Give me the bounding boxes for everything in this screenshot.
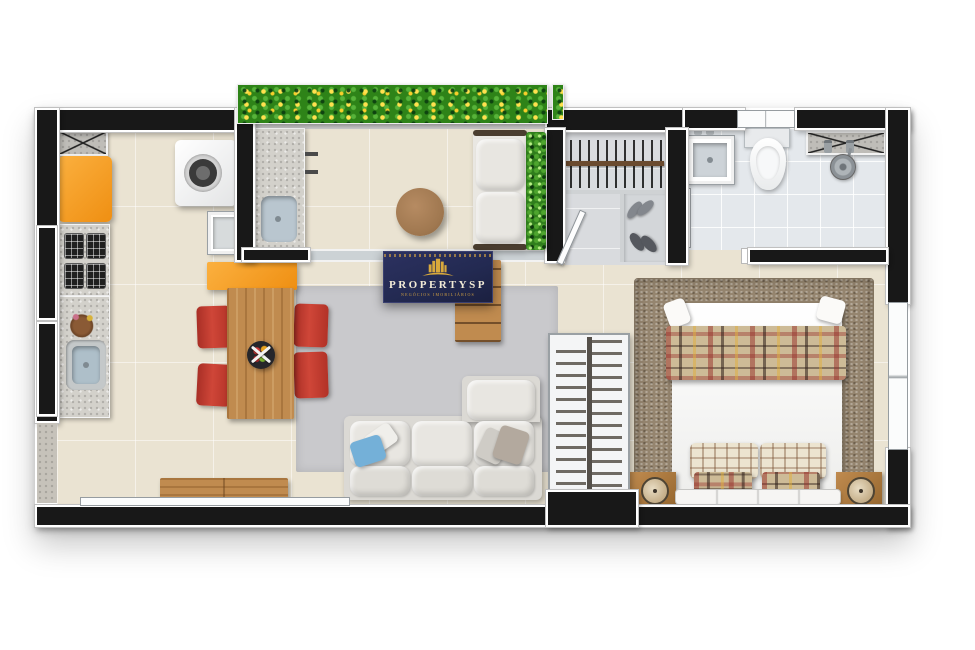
dining-chair-4	[293, 351, 329, 398]
flower-planter-right-piece	[552, 84, 564, 120]
shower-head	[830, 154, 856, 180]
fruit-bowl	[247, 341, 275, 369]
floor-plan: PROPERTYSP NEGÓCIOS IMOBILIÁRIOS	[0, 0, 975, 650]
alarm-clock-left	[641, 477, 669, 505]
wall-top-closet	[545, 108, 685, 132]
wall-left-masonry	[37, 423, 57, 503]
kitchen-sink	[66, 340, 106, 390]
sofa-seat-cushion-1	[350, 466, 410, 496]
wall-shelf-lower	[305, 170, 318, 174]
bedroom-window	[888, 302, 908, 450]
sofa-seat-cushion-2	[412, 466, 472, 496]
kitchen-window-upper	[37, 226, 57, 320]
wall-bath-bottom	[748, 248, 888, 264]
balcony-sink	[261, 196, 297, 242]
washing-machine	[175, 140, 237, 206]
wall-bottom	[35, 505, 910, 527]
logo-brand-text: PROPERTYSP	[389, 280, 487, 291]
building-skyline-icon	[416, 258, 460, 278]
balcony-flower-planter	[237, 84, 548, 124]
wall-balcony-stub	[242, 248, 310, 262]
wall-top-bath-left	[683, 108, 745, 130]
shower-valve-1	[824, 140, 832, 153]
cooktop-counter	[57, 224, 110, 296]
peninsula-counter	[207, 262, 297, 290]
wall-right-top	[886, 108, 910, 304]
wall-top-kitchen	[35, 108, 240, 132]
logo-deco-border	[384, 254, 492, 257]
plaid-blanket	[666, 326, 846, 380]
balcony-hedge	[526, 132, 546, 250]
bathroom-washbasin	[686, 136, 734, 184]
kitchen-window-lower	[37, 322, 57, 416]
living-window-sill	[80, 497, 350, 506]
bathroom-window	[737, 110, 795, 128]
wall-shelf-upper	[305, 152, 318, 156]
wall-kitchen-balcony	[235, 108, 255, 262]
sofa-chaise-cushion	[467, 380, 535, 420]
sofa-back-cushion-2	[412, 421, 472, 466]
balcony-sofa	[473, 130, 527, 250]
wall-closet-bath	[666, 128, 688, 265]
logo-tagline-text: NEGÓCIOS IMOBILIÁRIOS	[401, 293, 475, 297]
sofa-seat-cushion-3	[474, 466, 534, 496]
refrigerator	[58, 156, 112, 222]
watermark-logo: PROPERTYSP NEGÓCIOS IMOBILIÁRIOS	[383, 251, 493, 303]
bath-door-jamb	[741, 248, 748, 264]
wall-closet-left	[545, 128, 565, 263]
nightstand-right	[836, 472, 882, 506]
wardrobe-rail-unit	[548, 333, 630, 493]
headboard	[676, 490, 840, 504]
alarm-clock-right	[847, 477, 875, 505]
clothes-rail	[566, 161, 664, 166]
dining-chair-3	[293, 303, 328, 347]
closet-shelf-line	[566, 190, 666, 194]
closet-divider	[620, 192, 624, 262]
kitchen-countertop-cabinet	[58, 130, 108, 156]
wall-wardrobe-end	[546, 490, 638, 527]
round-coffee-table	[396, 188, 444, 236]
